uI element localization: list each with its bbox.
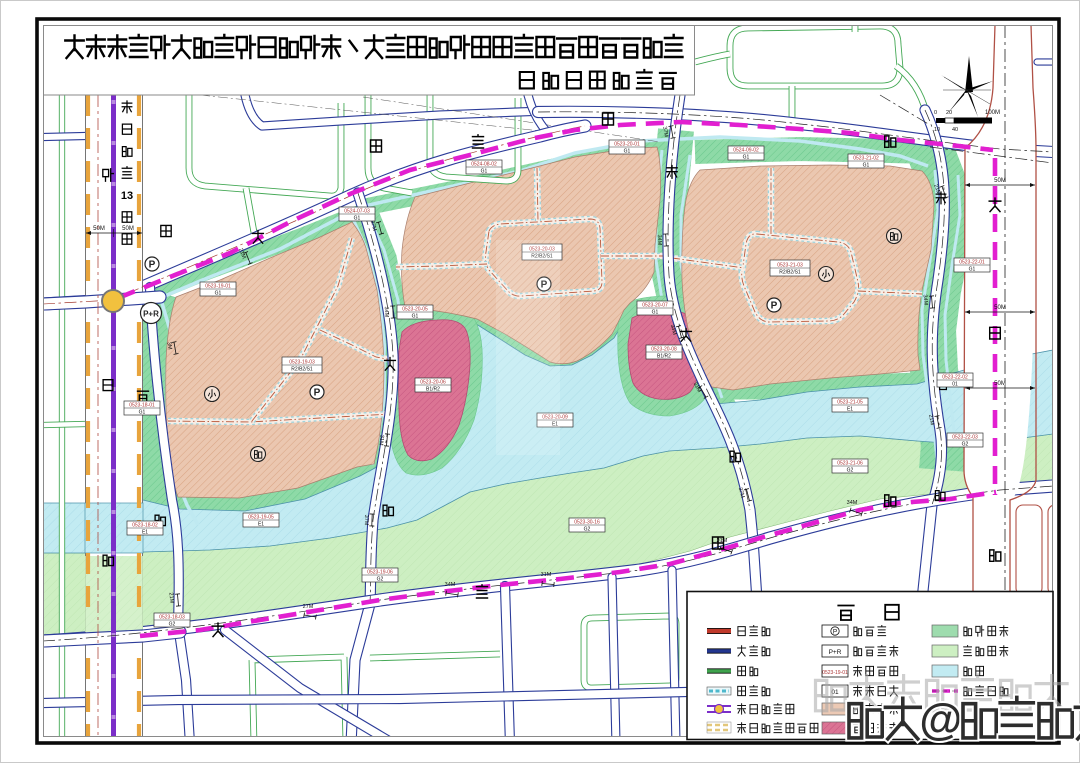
svg-text:0: 0 [934,110,937,116]
svg-text:34M: 34M [445,582,456,588]
svg-text:31M: 31M [378,434,385,446]
svg-text:50M: 50M [994,381,1006,387]
svg-text:13: 13 [121,190,133,202]
svg-text:21M: 21M [168,592,175,604]
svg-text:P: P [833,629,837,636]
svg-text:G2: G2 [584,526,591,532]
svg-text:40: 40 [952,127,958,133]
svg-text:G1: G1 [743,154,750,160]
svg-text:G2: G2 [377,576,384,582]
svg-text:0523-20-01: 0523-20-01 [614,141,640,147]
svg-text:E1: E1 [847,406,853,412]
svg-text:0524-08-02: 0524-08-02 [471,161,497,167]
svg-text:G1: G1 [624,148,631,154]
svg-text:0523-18-01: 0523-18-01 [129,402,155,408]
svg-text:0524-07-03: 0524-07-03 [344,208,370,214]
svg-text:P: P [314,388,321,399]
svg-text:0523-21-03: 0523-21-03 [777,262,803,268]
svg-text:G1: G1 [969,266,976,272]
svg-text:G2: G2 [847,467,854,473]
svg-text:G1: G1 [863,162,870,168]
svg-text:0523-19-05: 0523-19-05 [248,514,274,520]
svg-text:34M: 34M [922,294,929,306]
svg-text:B1/R2: B1/R2 [657,353,671,359]
svg-text:G1: G1 [139,409,146,415]
svg-text:E1: E1 [258,521,264,527]
svg-text:0523-22-02: 0523-22-02 [942,374,968,380]
svg-text:34M: 34M [847,500,858,506]
svg-text:B1/R2: B1/R2 [426,386,440,392]
svg-text:G2: G2 [962,441,969,447]
svg-text:50M: 50M [994,305,1006,311]
svg-text:0523-19-03: 0523-19-03 [289,359,315,365]
svg-text:G1: G1 [412,313,419,319]
svg-text:100M: 100M [985,110,1000,116]
svg-text:P: P [771,301,778,312]
svg-text:34M: 34M [656,234,663,245]
svg-text:0523-19-06: 0523-19-06 [367,569,393,575]
svg-text:0523-20-07: 0523-20-07 [642,302,668,308]
svg-text:G1: G1 [481,168,488,174]
svg-text:10: 10 [934,127,940,133]
svg-text:G1: G1 [652,309,659,315]
svg-text:0523-21-02: 0523-21-02 [853,155,879,161]
svg-text:0523-19-01: 0523-19-01 [822,670,848,676]
svg-text:0523-18-03: 0523-18-03 [159,614,185,620]
svg-text:27M: 27M [303,604,314,610]
svg-text:G2: G2 [169,621,176,627]
svg-text:01: 01 [952,381,958,387]
svg-text:0523-19-01: 0523-19-01 [205,283,231,289]
svg-text:0523-20-08: 0523-20-08 [651,346,677,352]
svg-text:G1: G1 [215,290,222,296]
svg-text:20: 20 [946,110,952,116]
svg-text:50M: 50M [994,178,1006,184]
svg-text:0523-20-05: 0523-20-05 [402,306,428,312]
svg-text:E1: E1 [142,529,148,535]
svg-text:50M: 50M [93,226,105,232]
svg-text:0523-30-16: 0523-30-16 [574,519,600,525]
svg-text:0523-22-03: 0523-22-03 [952,434,978,440]
svg-text:@: @ [919,695,962,744]
svg-text:0523-21-06: 0523-21-06 [837,460,863,466]
svg-text:37M: 37M [363,515,369,526]
svg-text:34M: 34M [383,306,390,317]
svg-text:50M: 50M [122,226,134,232]
svg-text:31M: 31M [541,572,552,578]
svg-text:P+R: P+R [143,310,159,319]
svg-text:0523-21-05: 0523-21-05 [837,399,863,405]
svg-text:P: P [149,260,156,271]
svg-text:G1: G1 [354,215,361,221]
svg-text:R2/B2/S1: R2/B2/S1 [291,366,313,372]
svg-text:0523-22-01: 0523-22-01 [959,259,985,265]
svg-text:0524-09-02: 0524-09-02 [733,147,759,153]
svg-text:P+R: P+R [829,649,842,656]
svg-text:R2/B2/S1: R2/B2/S1 [779,269,801,275]
svg-text:0523-20-06: 0523-20-06 [420,379,446,385]
svg-text:0523-18-02: 0523-18-02 [132,522,158,528]
